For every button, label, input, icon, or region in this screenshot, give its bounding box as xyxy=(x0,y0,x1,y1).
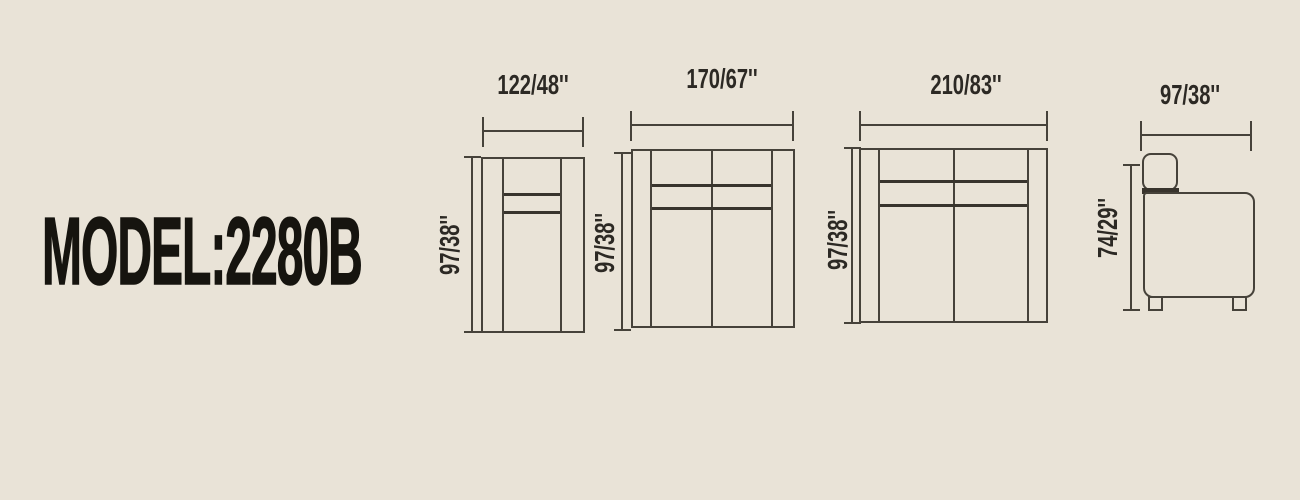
height-dimension-label: 97/38'' xyxy=(591,213,619,273)
width-dimension-label: 122/48'' xyxy=(497,71,568,99)
sofa-outline xyxy=(481,157,585,333)
armrest-line-right xyxy=(1027,150,1029,321)
width-dimension-line xyxy=(631,124,793,126)
armrest-line-left xyxy=(650,151,652,326)
seat-divider-line xyxy=(711,151,713,326)
height-dimension-label: 97/38'' xyxy=(824,210,852,270)
height-dimension-line xyxy=(1130,165,1132,310)
height-dimension-line xyxy=(621,153,623,330)
foot-left xyxy=(1148,296,1163,311)
width-dimension-line xyxy=(483,130,583,132)
seat-divider-line xyxy=(953,150,955,321)
width-dimension-label: 210/83'' xyxy=(930,71,1001,99)
height-dimension-line xyxy=(851,148,853,323)
back-seam-line-2 xyxy=(880,204,1027,207)
armrest-line-right xyxy=(560,159,562,331)
height-dimension-label: 74/29'' xyxy=(1094,198,1122,258)
foot-right xyxy=(1232,296,1247,311)
back-seam-line-1 xyxy=(504,193,560,196)
armrest-line-left xyxy=(878,150,880,321)
spec-sheet: MODEL:2280B 122/48'' 97/38'' 170/67'' 97… xyxy=(0,0,1300,500)
page-title: MODEL:2280B xyxy=(42,204,362,300)
back-seam-line-1 xyxy=(652,184,771,187)
sofa-outline xyxy=(859,148,1048,323)
back-seam-line-2 xyxy=(652,207,771,210)
armrest-line-right xyxy=(771,151,773,326)
height-dimension-label: 97/38'' xyxy=(436,215,464,275)
width-dimension-label: 170/67'' xyxy=(686,65,757,93)
armrest-line-left xyxy=(502,159,504,331)
width-dimension-line xyxy=(860,124,1047,126)
back-cushion-outline xyxy=(1142,153,1178,191)
height-dimension-line xyxy=(471,157,473,332)
body-outline xyxy=(1143,192,1255,298)
back-seam-line-2 xyxy=(504,211,560,214)
depth-dimension-label: 97/38'' xyxy=(1160,81,1220,109)
sofa-outline xyxy=(631,149,795,328)
back-seam-line-1 xyxy=(880,180,1027,183)
depth-dimension-line xyxy=(1141,134,1251,136)
